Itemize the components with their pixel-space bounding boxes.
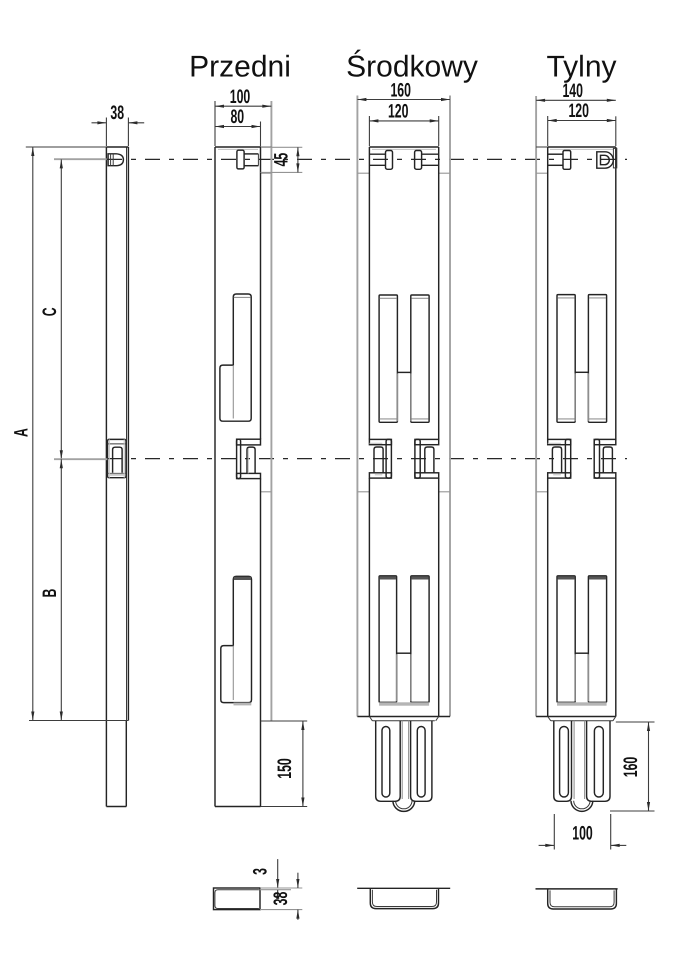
svg-text:140: 140	[562, 80, 583, 102]
svg-text:100: 100	[572, 823, 593, 845]
svg-text:Tylny: Tylny	[546, 51, 616, 84]
svg-text:3: 3	[250, 868, 272, 875]
svg-text:120: 120	[388, 101, 409, 123]
svg-text:B: B	[39, 589, 61, 598]
svg-text:160: 160	[390, 79, 411, 101]
svg-text:Środkowy: Środkowy	[346, 50, 478, 84]
svg-text:Przedni: Przedni	[189, 51, 291, 84]
svg-text:80: 80	[230, 106, 244, 128]
svg-text:38: 38	[110, 102, 124, 124]
svg-text:150: 150	[274, 758, 296, 779]
svg-text:38: 38	[270, 892, 292, 906]
svg-text:160: 160	[620, 757, 642, 778]
svg-text:120: 120	[568, 100, 589, 122]
svg-text:C: C	[39, 307, 61, 316]
svg-text:A: A	[11, 428, 33, 437]
svg-text:45: 45	[271, 153, 293, 167]
svg-text:100: 100	[230, 86, 251, 108]
